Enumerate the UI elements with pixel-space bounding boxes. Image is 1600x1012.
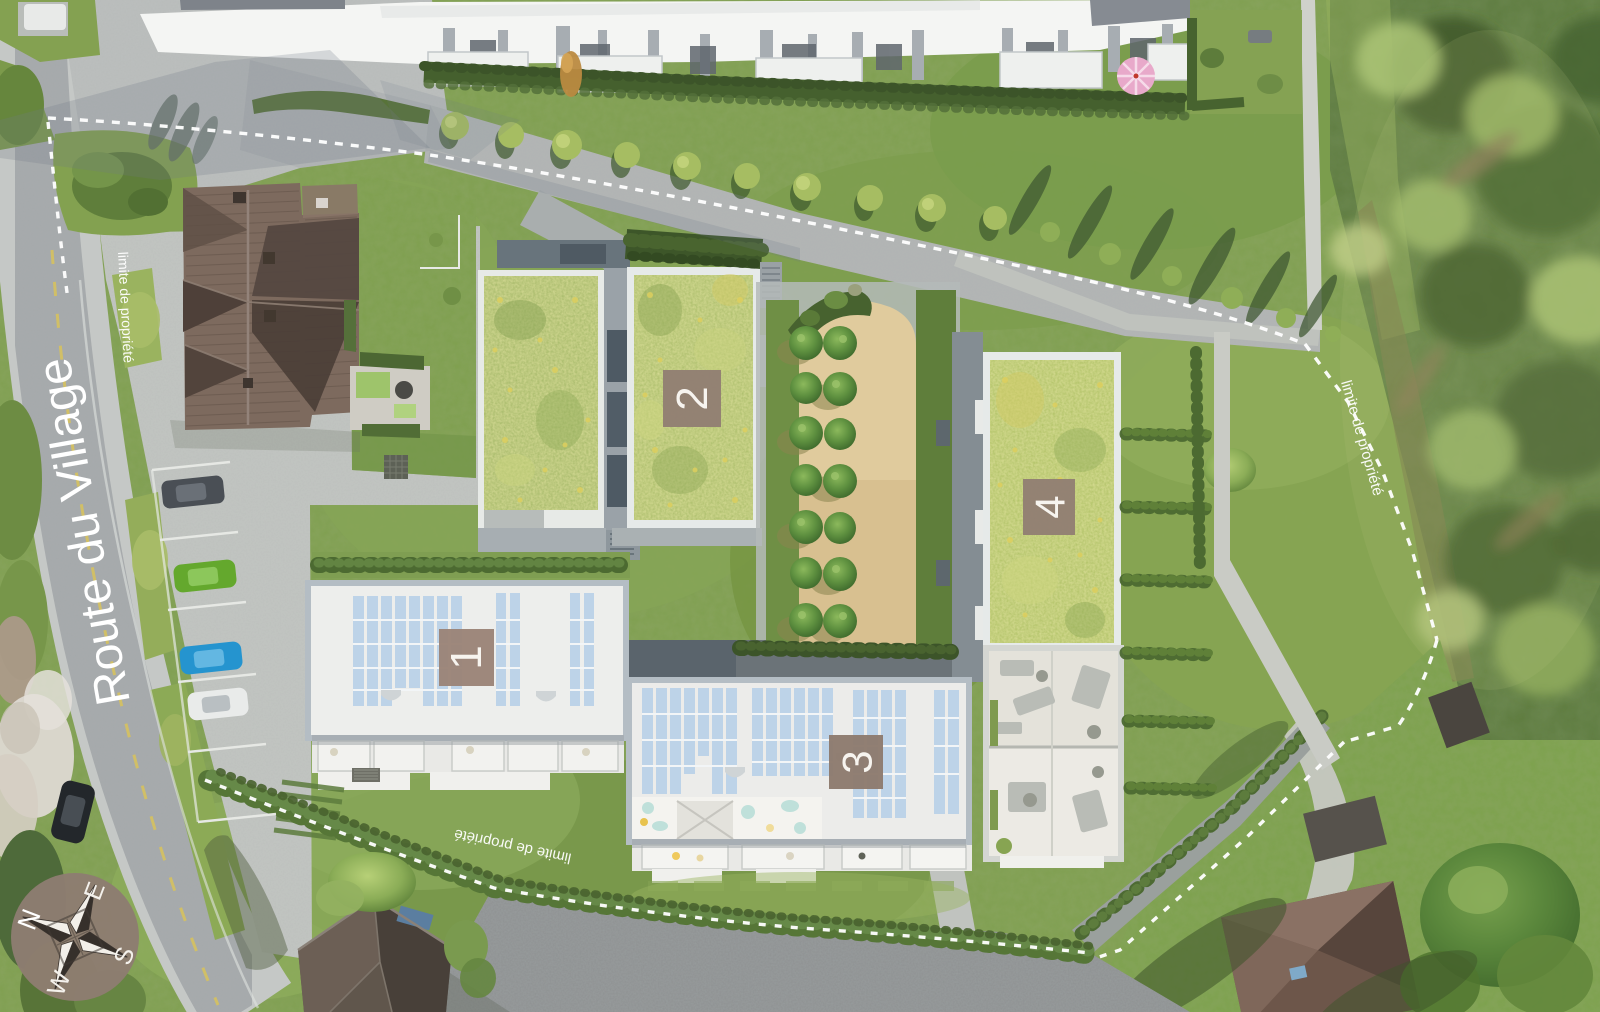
svg-text:2: 2 [668,386,717,410]
svg-text:1: 1 [442,645,491,669]
svg-text:3: 3 [834,750,881,773]
svg-text:4: 4 [1027,495,1074,518]
